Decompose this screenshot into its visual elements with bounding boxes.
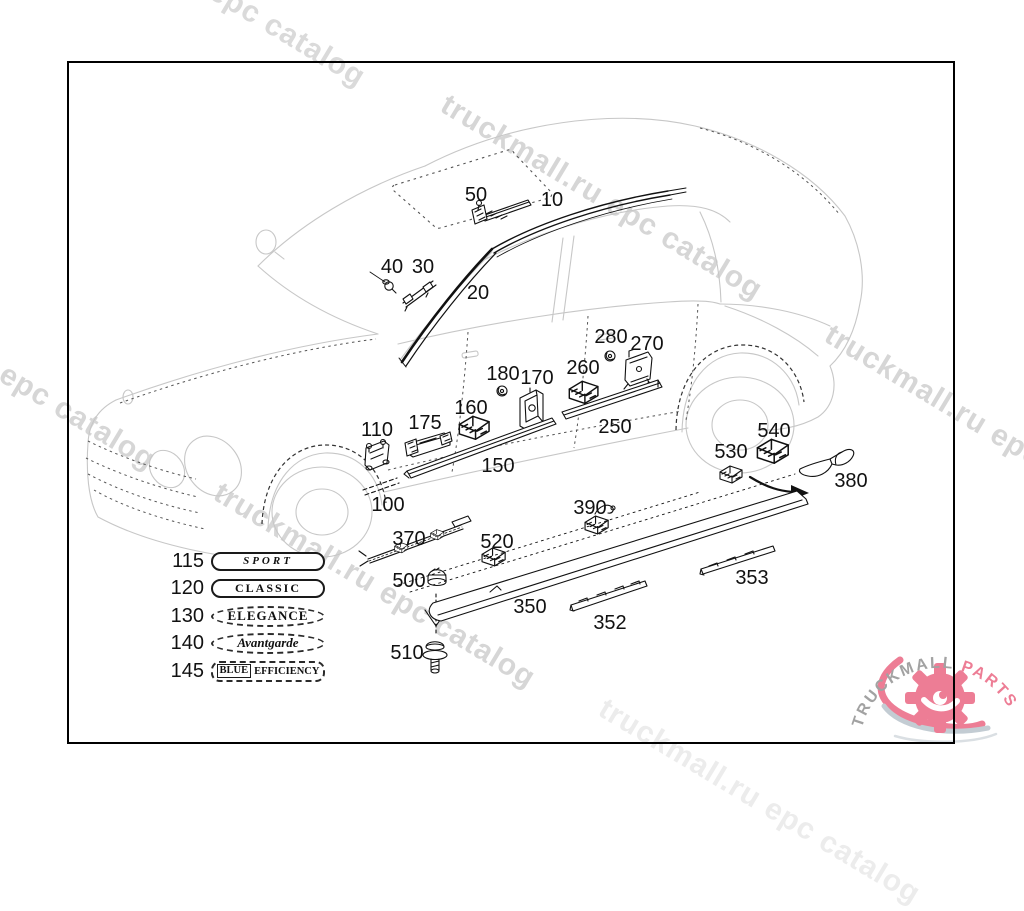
part-label-170[interactable]: 170 [520,368,553,388]
part-label-20[interactable]: 20 [467,283,489,303]
part-label-353[interactable]: 353 [735,568,768,588]
part-label-30[interactable]: 30 [412,257,434,277]
badge-boxed-word: BLUE [217,664,252,678]
legend-row-115: 115SPORT [158,549,325,573]
part-label-380[interactable]: 380 [834,471,867,491]
part-label-115[interactable]: 115 [158,551,204,571]
legend-row-145: 145BLUEEFFICIENCY [158,659,325,683]
part-label-540[interactable]: 540 [757,421,790,441]
part-label-510[interactable]: 510 [390,643,423,663]
badge-140: Avantgarde [211,633,325,654]
part-label-100[interactable]: 100 [371,495,404,515]
part-label-40[interactable]: 40 [381,257,403,277]
part-label-352[interactable]: 352 [593,613,626,633]
part-label-520[interactable]: 520 [480,532,513,552]
part-label-530[interactable]: 530 [714,442,747,462]
part-label-280[interactable]: 280 [594,327,627,347]
part-label-500[interactable]: 500 [392,571,425,591]
part-label-370[interactable]: 370 [392,529,425,549]
part-label-150[interactable]: 150 [481,456,514,476]
part-label-145[interactable]: 145 [158,661,204,681]
part-label-250[interactable]: 250 [598,417,631,437]
legend-row-140: 140Avantgarde [158,631,325,655]
part-label-120[interactable]: 120 [158,578,204,598]
part-label-160[interactable]: 160 [454,398,487,418]
badge-115: SPORT [211,552,325,571]
part-label-10[interactable]: 10 [541,190,563,210]
badge-120: CLASSIC [211,579,325,598]
part-label-350[interactable]: 350 [513,597,546,617]
part-label-130[interactable]: 130 [158,606,204,626]
part-label-110[interactable]: 110 [361,420,393,440]
part-label-50[interactable]: 50 [465,185,487,205]
legend-row-130: 130ELEGANCE [158,604,325,628]
part-label-180[interactable]: 180 [486,364,519,384]
part-label-270[interactable]: 270 [630,334,663,354]
legend-row-120: 120CLASSIC [158,576,325,600]
part-label-140[interactable]: 140 [158,633,204,653]
badge-130: ELEGANCE [211,606,325,627]
part-label-260[interactable]: 260 [566,358,599,378]
badge-145: BLUEEFFICIENCY [211,661,325,682]
part-label-175[interactable]: 175 [408,413,441,433]
part-label-390[interactable]: 390 [573,498,606,518]
